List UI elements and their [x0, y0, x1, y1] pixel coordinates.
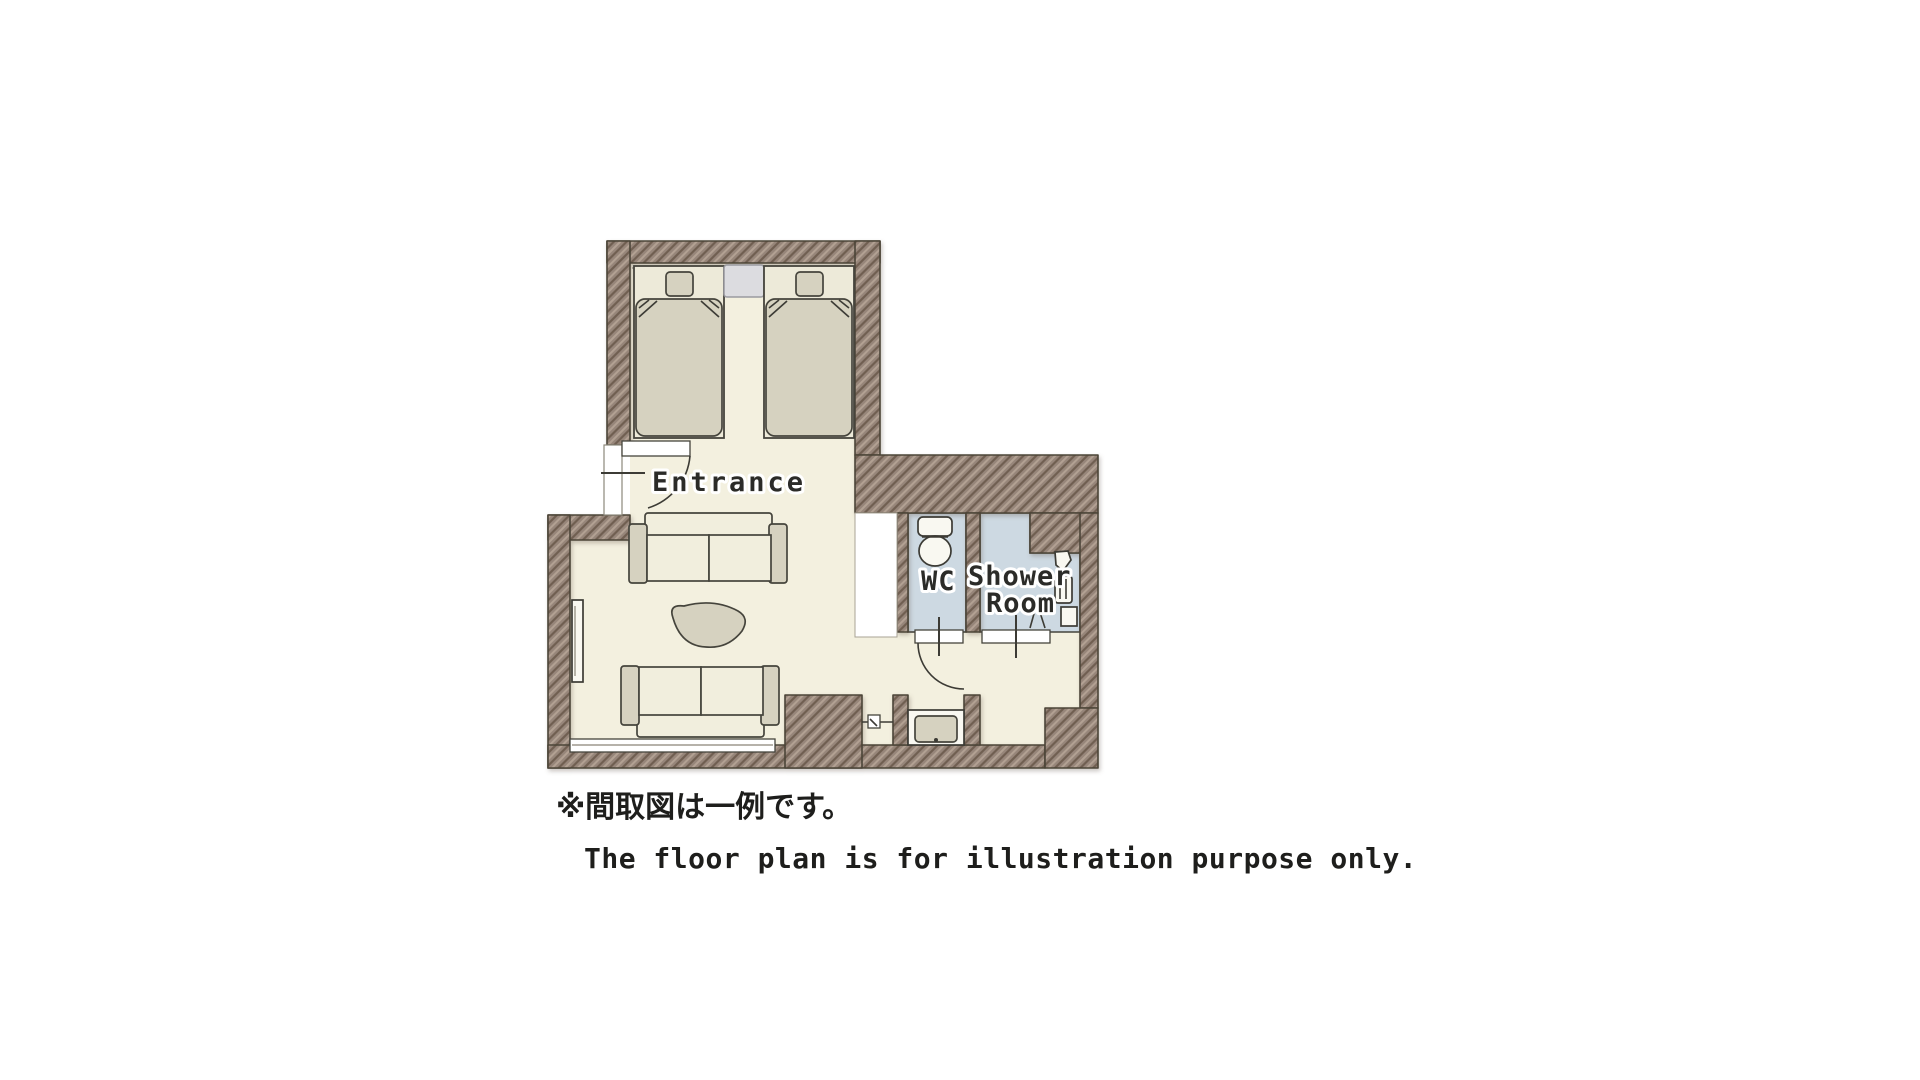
bedroom-left-wall [607, 241, 630, 445]
nightstand [724, 265, 764, 297]
shower-notch-wall [1030, 513, 1082, 553]
sofa-armrest [621, 666, 639, 725]
toilet-icon [918, 517, 952, 566]
pillow [796, 272, 823, 296]
washing-machine-icon [908, 710, 964, 745]
wing-right-wall [1080, 513, 1098, 708]
entrance-door-leaf [622, 441, 690, 456]
floor-plan-page: Entrance WC Shower Room ※間取図は一例です。 The f… [0, 0, 1920, 1080]
shower-room-label-line2: Room [986, 588, 1055, 619]
sofa-icon [621, 666, 779, 737]
bedroom-top-wall [607, 241, 880, 263]
washing-machine-knob [934, 738, 938, 742]
sofa-armrest [629, 524, 647, 583]
sofa-seat-cushion [709, 535, 771, 581]
bed-icon [764, 266, 854, 438]
entrance-label: Entrance [652, 467, 806, 498]
living-left-wall [548, 515, 570, 768]
sofa-backrest [637, 713, 764, 737]
sofa-backrest [645, 513, 772, 537]
sofa-seat-cushion [647, 535, 709, 581]
entrance-opening [604, 445, 622, 515]
wing-top-wall [855, 455, 1098, 513]
toilet-bowl [919, 536, 951, 566]
wing-bottom-step-wall [1045, 708, 1098, 768]
wc-left-wall [897, 513, 908, 632]
toilet-tank [918, 517, 952, 536]
floor-plan-drawing: Entrance WC Shower Room ※間取図は一例です。 The f… [0, 0, 1920, 1080]
blanket [766, 299, 852, 436]
service-shaft [855, 513, 897, 637]
bed-icon [634, 266, 724, 438]
wc-label: WC [921, 566, 956, 597]
sofa-icon [629, 513, 787, 583]
bedroom-right-wall [855, 241, 880, 455]
sofa-seat-cushion [639, 667, 701, 715]
sofa-seat-cushion [701, 667, 763, 715]
blanket [636, 299, 722, 436]
corridor-lower-right-floor [1045, 637, 1080, 708]
disclaimer-japanese: ※間取図は一例です。 [556, 790, 852, 825]
laundry-stub-right-wall [964, 695, 980, 745]
living-step-wall [785, 695, 862, 768]
laundry-stub-left-wall [893, 695, 908, 745]
disclaimer-notes: ※間取図は一例です。 The floor plan is for illustr… [556, 790, 1417, 875]
disclaimer-english: The floor plan is for illustration purpo… [584, 842, 1417, 875]
tv-icon [572, 600, 583, 682]
shower-caddy [1061, 607, 1077, 626]
pillow [666, 272, 693, 296]
tap-box [868, 715, 880, 728]
